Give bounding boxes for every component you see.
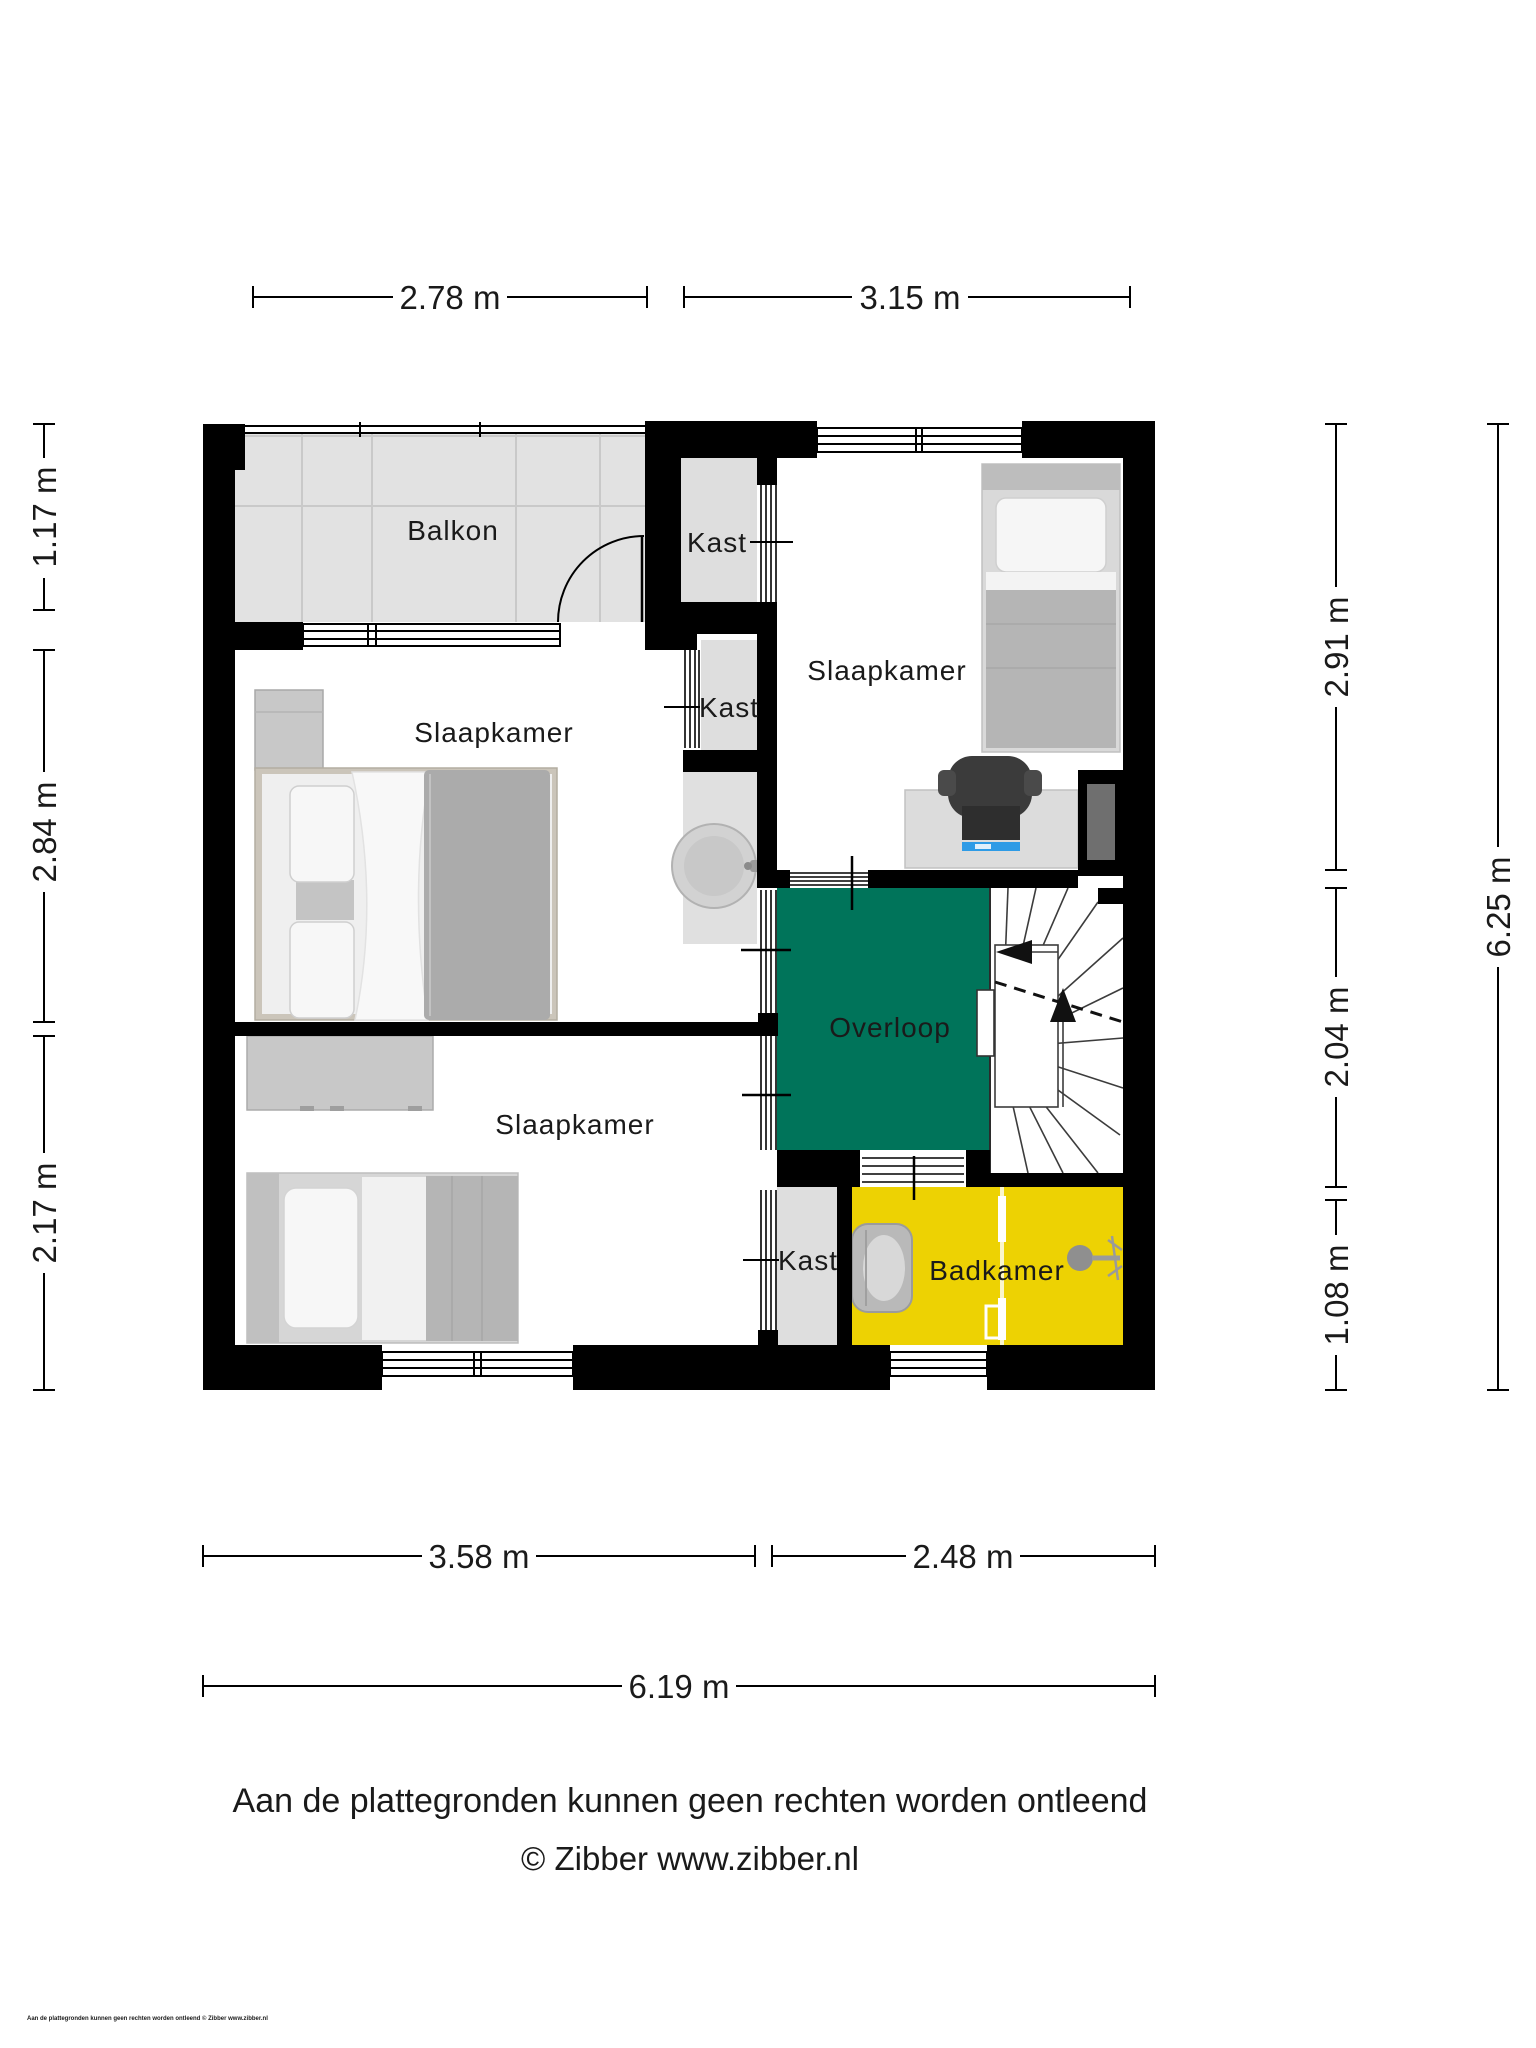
wall-under-stairs bbox=[990, 1173, 1123, 1187]
wall-mid-column bbox=[757, 602, 777, 888]
label-slaapkamer-left: Slaapkamer bbox=[414, 717, 573, 748]
single-bed-bottom bbox=[247, 1173, 518, 1343]
dim-label-top-left: 2.78 m bbox=[400, 279, 501, 316]
wall-stub-kast-mid bbox=[681, 634, 697, 650]
dim-label-bottom-right: 2.48 m bbox=[913, 1538, 1014, 1575]
dim-top-left: 2.78 m bbox=[253, 279, 647, 316]
dim-label-left-top: 1.17 m bbox=[26, 467, 63, 568]
label-slaapkamer-right: Slaapkamer bbox=[807, 655, 966, 686]
label-kast-middle: Kast bbox=[699, 692, 759, 723]
dim-left-middle: 2.84 m bbox=[26, 650, 63, 1022]
dim-label-top-right: 3.15 m bbox=[860, 279, 961, 316]
single-bed-right bbox=[982, 464, 1120, 752]
dim-label-bottom-left: 3.58 m bbox=[429, 1538, 530, 1575]
wall-top-b bbox=[1022, 421, 1155, 458]
window-top-bedroom bbox=[817, 428, 1022, 452]
wall-bottom-a bbox=[203, 1345, 382, 1390]
wall-kast-bottom-right bbox=[837, 1187, 852, 1345]
wall-bottom-b bbox=[573, 1345, 890, 1390]
dim-label-right-total: 6.25 m bbox=[1480, 857, 1517, 958]
wall-badkamer-top-b bbox=[966, 1150, 990, 1187]
stair-newel-box bbox=[995, 945, 1058, 1107]
dim-right-middle: 2.04 m bbox=[1318, 888, 1355, 1187]
wall-kast-bottom-stub bbox=[758, 1330, 778, 1345]
label-balkon: Balkon bbox=[407, 515, 499, 546]
label-badkamer: Badkamer bbox=[929, 1255, 1065, 1286]
label-overloop: Overloop bbox=[829, 1012, 951, 1043]
double-bed bbox=[255, 768, 557, 1020]
wall-bedroom-divider bbox=[203, 1022, 758, 1036]
window-bottom-bedroom bbox=[382, 1352, 573, 1376]
dim-left-bottom: 2.17 m bbox=[26, 1036, 63, 1390]
floor-plan-canvas: Balkon Kast Kast Slaapkamer Slaapkamer S… bbox=[0, 0, 1536, 2048]
chimney-niche bbox=[1087, 784, 1115, 860]
label-kast-bottom: Kast bbox=[778, 1245, 838, 1276]
wall-left bbox=[203, 424, 235, 1390]
footer-disclaimer: Aan de plattegronden kunnen geen rechten… bbox=[233, 1782, 1148, 1820]
dim-label-right-bottom: 1.08 m bbox=[1318, 1245, 1355, 1346]
wall-bottom-c bbox=[987, 1345, 1155, 1390]
dim-top-right: 3.15 m bbox=[684, 279, 1130, 316]
dim-bottom-total: 6.19 m bbox=[203, 1668, 1155, 1705]
window-balkon bbox=[303, 624, 560, 646]
wall-balkon-bottom-stub bbox=[235, 622, 303, 650]
dim-label-right-middle: 2.04 m bbox=[1318, 987, 1355, 1088]
footer-copyright: © Zibber www.zibber.nl bbox=[521, 1840, 859, 1877]
laptop bbox=[962, 806, 1020, 851]
wall-right bbox=[1123, 424, 1155, 1390]
stair-door-leaf bbox=[977, 990, 994, 1056]
label-slaapkamer-bottom: Slaapkamer bbox=[495, 1109, 654, 1140]
dresser bbox=[247, 1036, 433, 1111]
dim-label-left-bottom: 2.17 m bbox=[26, 1163, 63, 1264]
dim-left-top: 1.17 m bbox=[26, 424, 63, 610]
dim-right-total: 6.25 m bbox=[1480, 424, 1517, 1390]
wardrobe bbox=[255, 690, 323, 770]
wall-overloop-left-stub bbox=[758, 1013, 778, 1036]
dim-bottom-left: 3.58 m bbox=[203, 1538, 755, 1575]
window-badkamer bbox=[890, 1352, 987, 1376]
floor-plan-page: Balkon Kast Kast Slaapkamer Slaapkamer S… bbox=[0, 0, 1536, 2048]
wall-stair-stub bbox=[1098, 888, 1123, 904]
wall-stub-kast-top bbox=[757, 458, 777, 485]
footer-fine-print: Aan de plattegronden kunnen geen rechten… bbox=[27, 2015, 268, 2022]
dim-label-right-top: 2.91 m bbox=[1318, 597, 1355, 698]
wall-overloop-top-a bbox=[757, 870, 790, 888]
wall-balkon-right bbox=[645, 424, 681, 650]
dim-label-left-middle: 2.84 m bbox=[26, 782, 63, 883]
label-kast-top: Kast bbox=[687, 527, 747, 558]
wall-overloop-top-b bbox=[868, 870, 1078, 888]
dim-bottom-right: 2.48 m bbox=[772, 1538, 1155, 1575]
toilet bbox=[852, 1224, 912, 1312]
wall-badkamer-top-a bbox=[777, 1150, 860, 1187]
dim-right-bottom: 1.08 m bbox=[1318, 1200, 1355, 1390]
dim-label-bottom-total: 6.19 m bbox=[629, 1668, 730, 1705]
wall-corner-top-left bbox=[203, 424, 245, 470]
dim-right-top: 2.91 m bbox=[1318, 424, 1355, 870]
